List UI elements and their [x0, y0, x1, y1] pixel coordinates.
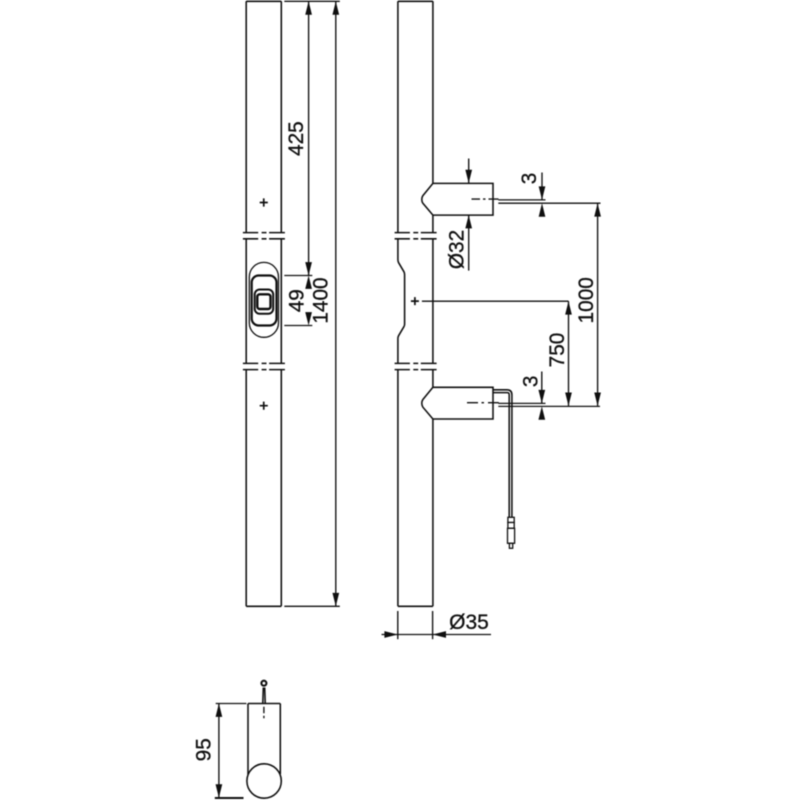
svg-text:3: 3	[519, 376, 542, 388]
svg-text:1000: 1000	[575, 277, 598, 323]
svg-text:49: 49	[286, 289, 309, 312]
svg-text:3: 3	[518, 173, 541, 185]
svg-text:425: 425	[285, 121, 308, 156]
svg-text:1400: 1400	[310, 277, 333, 323]
svg-text:Ø32: Ø32	[445, 230, 468, 269]
svg-text:750: 750	[546, 333, 569, 368]
svg-text:Ø35: Ø35	[449, 611, 489, 634]
svg-text:95: 95	[193, 738, 216, 761]
